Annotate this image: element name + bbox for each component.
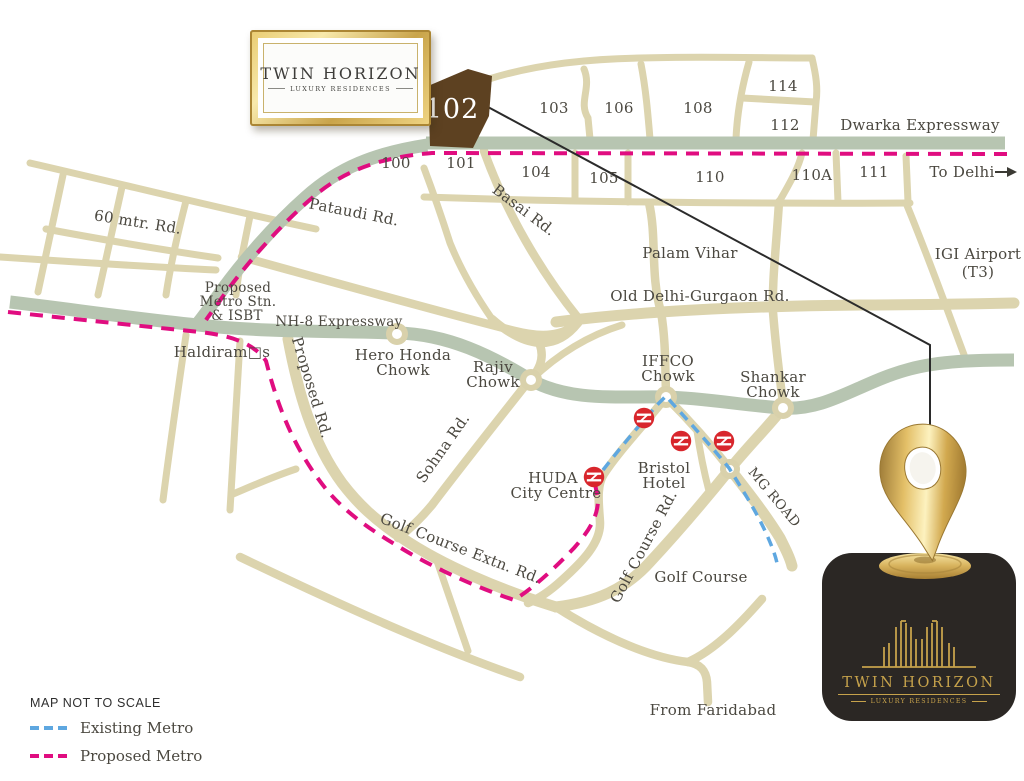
right-rule bbox=[972, 701, 987, 702]
brand-frame-subtitle: LUXURY RESIDENCES bbox=[290, 85, 391, 93]
existing-metro-swatch bbox=[30, 726, 70, 730]
palam-vihar-label: Palam Vihar bbox=[642, 244, 738, 262]
sector-100-label: 100 bbox=[381, 154, 411, 172]
iffco-chowk-label-line2: Chowk bbox=[641, 367, 695, 385]
legend-proposed-metro: Proposed Metro bbox=[30, 746, 202, 766]
sector-112-label: 112 bbox=[770, 116, 800, 134]
hero-honda-chowk-label-line2: Chowk bbox=[376, 361, 430, 379]
brand-frame-subtitle-row: LUXURY RESIDENCES bbox=[268, 85, 413, 93]
sector-110-label: 110 bbox=[695, 168, 725, 186]
location-map: 102 100 101 103 104 105 106 108 110 110A… bbox=[0, 0, 1024, 781]
pin-hole bbox=[908, 451, 937, 486]
to-delhi-arrow-icon bbox=[995, 167, 1017, 177]
nh8-expressway-road bbox=[10, 302, 1014, 408]
plot-number: 102 bbox=[425, 94, 480, 125]
map-not-to-scale-note: MAP NOT TO SCALE bbox=[30, 696, 202, 710]
map-legend: MAP NOT TO SCALE Existing Metro Proposed… bbox=[30, 696, 202, 766]
sector-108-label: 108 bbox=[683, 99, 713, 117]
brand-frame-title: TWIN HORIZON bbox=[260, 64, 420, 83]
brand-card-subtitle: LUXURY RESIDENCES bbox=[871, 698, 968, 705]
sector-103-label: 103 bbox=[539, 99, 569, 117]
old-delhi-gurgaon-rd-label: Old Delhi-Gurgaon Rd. bbox=[610, 287, 789, 305]
shankar-chowk-junction bbox=[775, 400, 791, 416]
huda-city-centre-label-line2: City Centre bbox=[511, 484, 602, 502]
sector-106-label: 106 bbox=[604, 99, 634, 117]
sector-114-label: 114 bbox=[768, 77, 798, 95]
igi-airport-label-line2: (T3) bbox=[962, 263, 994, 281]
sixty-mtr-rd-label: 60 mtr. Rd. bbox=[93, 206, 183, 238]
pataudi-rd-label: Pataudi Rd. bbox=[308, 195, 401, 230]
igi-airport-label-line1: IGI Airport bbox=[935, 245, 1022, 263]
from-faridabad-label: From Faridabad bbox=[650, 701, 777, 719]
golf-course-label: Golf Course bbox=[654, 568, 747, 586]
twin-towers-logo-icon bbox=[854, 611, 984, 673]
proposed-metro-stn-label-line3: & ISBT bbox=[211, 308, 263, 324]
sector-105-label: 105 bbox=[589, 169, 619, 187]
sector-110a-label: 110A bbox=[792, 166, 833, 184]
left-rule bbox=[851, 701, 866, 702]
nh8-expressway-label: NH-8 Expressway bbox=[275, 314, 402, 330]
sector-111-label: 111 bbox=[859, 163, 889, 181]
proposed-metro-swatch bbox=[30, 754, 70, 758]
proposed-metro-label: Proposed Metro bbox=[80, 747, 202, 765]
right-rule bbox=[396, 88, 413, 89]
metro-station-icon bbox=[714, 431, 734, 451]
metro-station-icon bbox=[671, 431, 691, 451]
sohna-rd-label: Sohna Rd. bbox=[412, 410, 473, 486]
brand-frame-matte: TWIN HORIZON LUXURY RESIDENCES bbox=[258, 38, 423, 118]
existing-metro-label: Existing Metro bbox=[80, 719, 193, 737]
metro-station-icon bbox=[584, 467, 604, 487]
brand-card-title: TWIN HORIZON bbox=[838, 675, 999, 695]
dwarka-expressway-label: Dwarka Expressway bbox=[840, 116, 1000, 134]
gold-location-pin bbox=[856, 406, 996, 596]
rajiv-chowk-junction bbox=[523, 372, 539, 388]
brand-frame: TWIN HORIZON LUXURY RESIDENCES bbox=[250, 30, 431, 126]
pin-body bbox=[875, 420, 975, 565]
metro-station-icon bbox=[634, 408, 654, 428]
haldirams-label: Haldiram□s bbox=[174, 343, 270, 361]
sector-101-label: 101 bbox=[446, 154, 476, 172]
brand-card-subtitle-row: LUXURY RESIDENCES bbox=[851, 698, 988, 705]
legend-existing-metro: Existing Metro bbox=[30, 718, 202, 738]
shankar-chowk-label-line2: Chowk bbox=[746, 383, 800, 401]
left-rule bbox=[268, 88, 285, 89]
rajiv-chowk-label-line2: Chowk bbox=[466, 373, 520, 391]
to-delhi-label: To Delhi bbox=[929, 163, 994, 181]
sector-104-label: 104 bbox=[521, 163, 551, 181]
